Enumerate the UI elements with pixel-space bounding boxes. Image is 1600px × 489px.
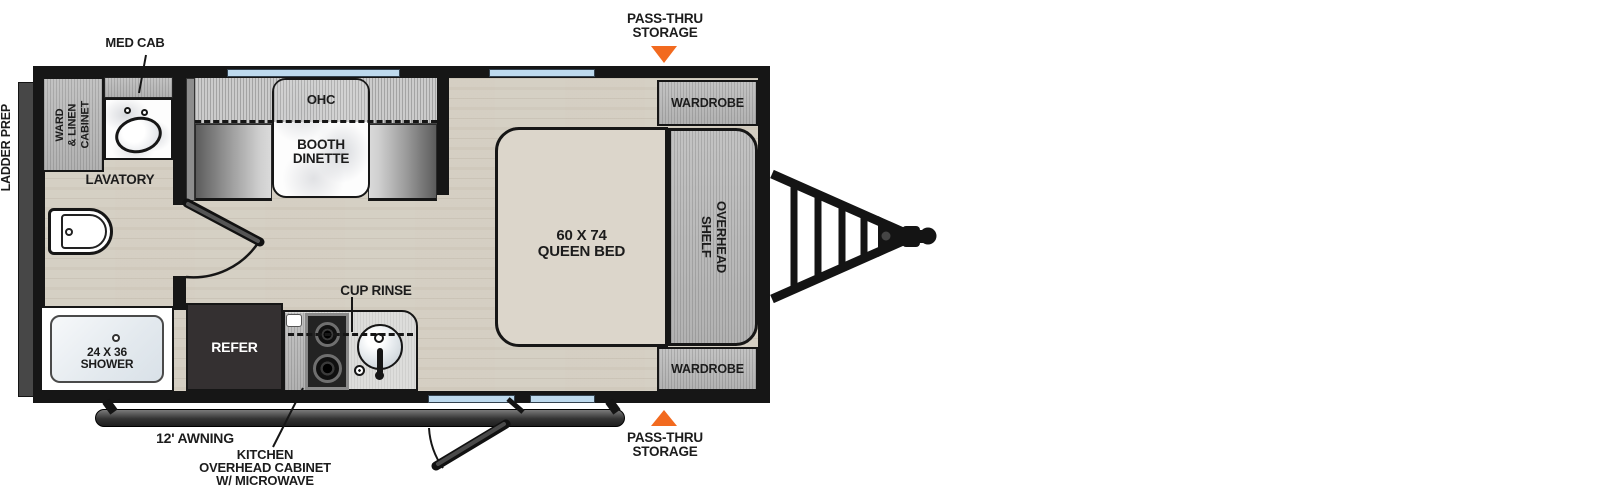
queen-bed: 60 X 74 QUEEN BED	[495, 127, 668, 347]
hitch-tongue	[772, 174, 937, 299]
wardrobe-bottom-label: WARDROBE	[671, 363, 744, 376]
counter-item	[286, 314, 302, 327]
entry-door-leaf-face	[438, 424, 504, 464]
lavatory-counter	[104, 98, 173, 160]
pass-thru-storage-bottom-label: PASS-THRU STORAGE	[595, 431, 735, 458]
overhead-shelf: OVERHEAD SHELF	[668, 128, 758, 346]
pass-thru-arrow-up-icon	[651, 410, 677, 426]
refrigerator: REFER	[186, 303, 283, 391]
pass-thru-storage-top-label: PASS-THRU STORAGE	[595, 12, 735, 39]
dinette-table: OHC BOOTH DINETTE	[272, 78, 370, 198]
entry-door-leaf	[436, 424, 506, 466]
toilet	[48, 208, 113, 255]
kitchen-overhead-cabinet-label: KITCHEN OVERHEAD CABINET W/ MICROWAVE	[180, 448, 350, 487]
med-cab-label: MED CAB	[95, 36, 175, 50]
shower-pan: 24 X 36 SHOWER	[50, 315, 164, 383]
kitchen-ohc-dashed-line	[288, 333, 413, 336]
rv-floorplan: LADDER PREP WARD & LINEN CABINET 24 X 36…	[0, 0, 1600, 489]
ward-linen-cabinet: WARD & LINEN CABINET	[42, 77, 104, 172]
dinette-bench-right	[368, 124, 437, 201]
hitch-pin-hole	[882, 232, 891, 241]
stove-burner	[313, 354, 342, 383]
dinette-end-panel	[186, 78, 195, 201]
faucet-dot	[141, 109, 148, 116]
ohc-label: OHC	[274, 93, 368, 107]
hitch-rail-top	[772, 174, 903, 232]
hitch-ball-knob	[920, 228, 937, 245]
hitch-coupler	[902, 226, 920, 247]
awning-bar	[95, 409, 625, 427]
window-bed	[489, 69, 595, 77]
bathroom-wall	[173, 68, 186, 205]
partition-wall	[437, 68, 449, 195]
shower: 24 X 36 SHOWER	[40, 306, 174, 392]
lavatory-label: LAVATORY	[60, 173, 180, 187]
overhead-shelf-label: OVERHEAD SHELF	[698, 201, 728, 273]
awning-label: 12' AWNING	[130, 431, 260, 446]
wardrobe-bottom: WARDROBE	[657, 347, 758, 391]
queen-bed-label: 60 X 74 QUEEN BED	[498, 228, 665, 259]
window-entry	[530, 395, 595, 403]
shower-label: 24 X 36 SHOWER	[52, 346, 162, 371]
refer-label: REFER	[211, 340, 257, 355]
dinette-bench-left	[195, 124, 272, 201]
ward-linen-label: WARD & LINEN CABINET	[54, 101, 92, 149]
entry-door-swing-arc	[429, 428, 443, 468]
sink-faucet-dot	[375, 371, 384, 380]
faucet-dot	[124, 107, 131, 114]
wardrobe-top-label: WARDROBE	[671, 97, 744, 110]
bathroom-wall-stub	[173, 276, 186, 310]
stove	[305, 313, 349, 390]
cup-rinse-label: CUP RINSE	[326, 284, 426, 298]
toilet-flush-button	[65, 228, 73, 236]
ladder-prep-label: LADDER PREP	[0, 104, 16, 191]
hitch-tip	[878, 216, 906, 257]
shower-drain	[112, 334, 120, 342]
window-dinette	[227, 69, 400, 77]
sink-faucet-knob	[354, 365, 365, 376]
ohc-dashed-line	[195, 120, 437, 123]
hitch-rail-bottom	[772, 241, 903, 299]
wardrobe-top: WARDROBE	[657, 80, 758, 126]
lavatory-sink-basin	[112, 113, 165, 158]
medicine-cabinet	[104, 77, 173, 98]
booth-dinette-label: BOOTH DINETTE	[274, 138, 368, 166]
hitch-coupler-neck	[918, 230, 925, 243]
entry-door-glass	[428, 395, 515, 403]
pass-thru-arrow-down-icon	[651, 46, 677, 63]
